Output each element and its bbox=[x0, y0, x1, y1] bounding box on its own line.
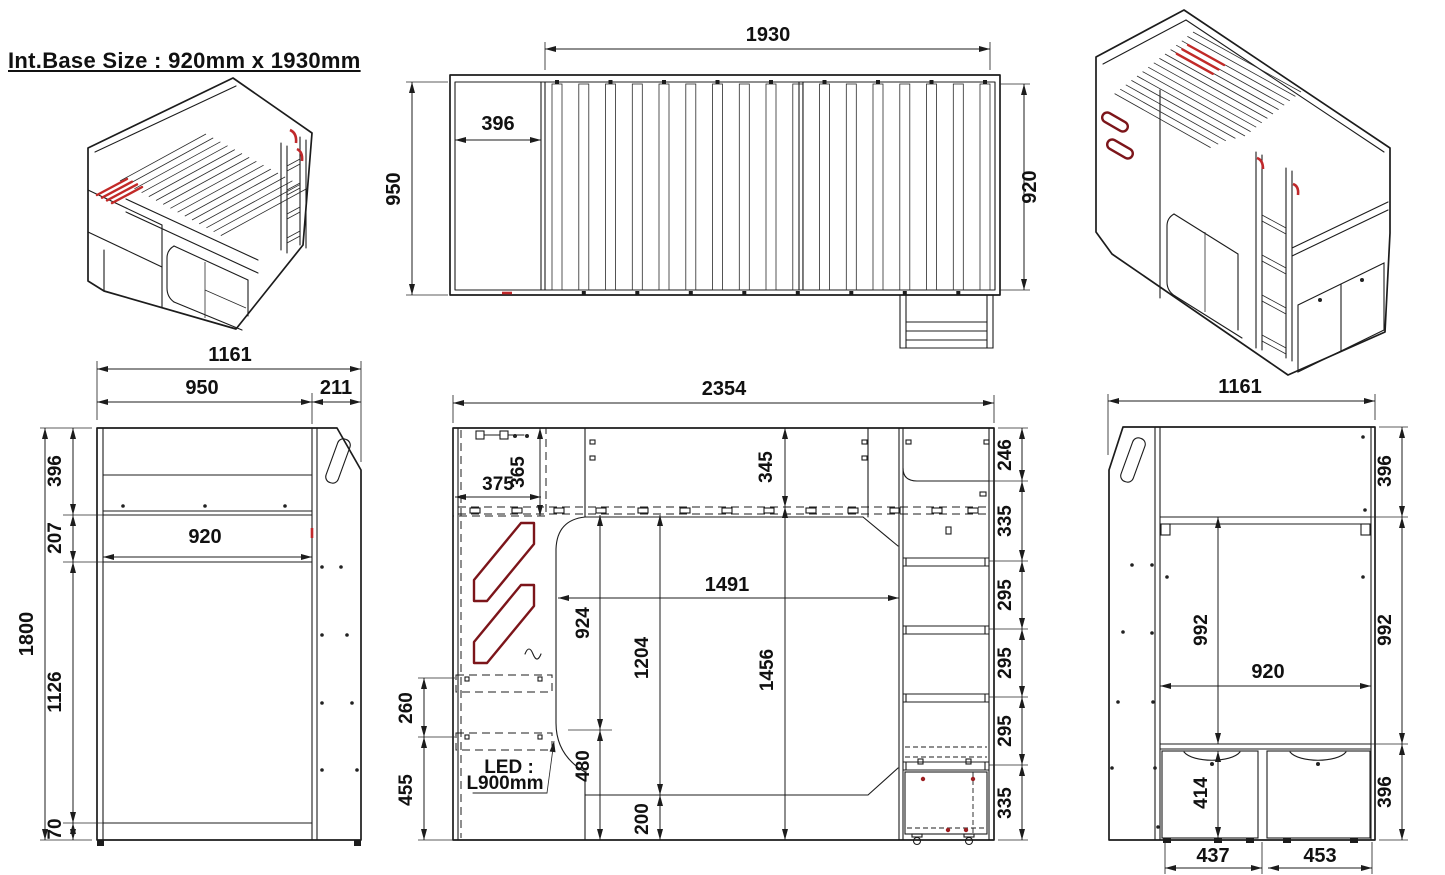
dim-label: 992 bbox=[1191, 614, 1212, 646]
dim-label: 437 bbox=[1196, 845, 1229, 867]
dim-label: 950 bbox=[383, 172, 405, 205]
dim-label: 1456 bbox=[757, 649, 778, 691]
red-accent-slats bbox=[97, 179, 142, 203]
dim-label: 396 bbox=[1375, 776, 1396, 808]
handle-cutout bbox=[1119, 436, 1147, 484]
dim-label: 396 bbox=[45, 455, 66, 487]
red-handle-slots bbox=[1100, 111, 1134, 161]
dim-label: 2354 bbox=[702, 378, 747, 400]
dim-label: 1930 bbox=[746, 24, 791, 46]
plan-ladder bbox=[900, 295, 993, 348]
dim-label: 70 bbox=[45, 818, 66, 839]
iso-view-front-left bbox=[88, 78, 312, 330]
dim-label: 920 bbox=[1251, 661, 1284, 683]
fitting-holes bbox=[121, 504, 359, 772]
side-elevation-left: 1161 950 211 396 207 1126 70 1800 920 bbox=[16, 344, 361, 846]
front-elevation: LED : L900mm bbox=[396, 378, 1028, 845]
dim-label: 335 bbox=[995, 505, 1016, 537]
dim-label: 335 bbox=[995, 787, 1016, 819]
drawing-canvas: 1930 396 950 920 bbox=[0, 0, 1445, 875]
ladder bbox=[1256, 152, 1292, 361]
dim-label: 207 bbox=[45, 522, 66, 554]
dim-label: 246 bbox=[995, 439, 1016, 471]
dim-label: 345 bbox=[756, 451, 777, 483]
dim-label: 1161 bbox=[208, 344, 251, 366]
dim-label: 453 bbox=[1303, 845, 1336, 867]
fitting-holes bbox=[1110, 435, 1367, 829]
hidden-cabinet bbox=[453, 428, 546, 516]
top-bunk-slats bbox=[120, 134, 307, 236]
slat-clips bbox=[555, 80, 987, 295]
ladder-rungs bbox=[903, 558, 989, 770]
dim-label: 295 bbox=[995, 647, 1016, 679]
red-accent-slats bbox=[1177, 45, 1224, 74]
dim-label: 1800 bbox=[16, 612, 38, 657]
dim-label: 920 bbox=[1019, 170, 1041, 203]
dim-label: 924 bbox=[573, 607, 594, 639]
handle-cutout bbox=[324, 437, 352, 485]
dim-label: 992 bbox=[1375, 614, 1396, 646]
dim-label: 295 bbox=[995, 579, 1016, 611]
dim-label: 200 bbox=[632, 803, 653, 835]
led-label: L900mm bbox=[466, 773, 543, 794]
dim-label: 211 bbox=[320, 377, 352, 399]
drawer-right bbox=[1267, 751, 1370, 838]
dim-label: 260 bbox=[396, 692, 417, 724]
hook-icon bbox=[525, 649, 541, 659]
dim-label: 455 bbox=[396, 774, 417, 806]
joint-marks bbox=[590, 440, 989, 534]
dim-label: 295 bbox=[995, 715, 1016, 747]
technical-drawing-sheet: Int.Base Size : 920mm x 1930mm bbox=[0, 0, 1445, 875]
top-bunk-slats bbox=[1115, 32, 1301, 148]
red-handle-slots bbox=[474, 523, 534, 663]
side-elevation-right: 1161 396 992 396 992 414 920 437 453 bbox=[1108, 376, 1408, 874]
dim-label: 480 bbox=[573, 750, 594, 782]
hinge-hardware bbox=[476, 431, 529, 439]
dim-label: 1491 bbox=[705, 574, 750, 596]
dim-label: 414 bbox=[1191, 777, 1212, 809]
dim-label: 396 bbox=[1375, 455, 1396, 487]
drawers bbox=[1298, 263, 1384, 372]
dim-label: 1161 bbox=[1218, 376, 1261, 398]
dim-label: 396 bbox=[481, 113, 514, 135]
dim-label: 365 bbox=[508, 456, 529, 488]
plan-view: 1930 396 950 920 bbox=[383, 24, 1041, 348]
iso-view-back-right bbox=[1096, 10, 1390, 375]
dim-label: 1126 bbox=[45, 671, 66, 712]
plan-slats bbox=[552, 84, 990, 290]
dim-label: 950 bbox=[185, 377, 218, 399]
shelf-clips bbox=[465, 677, 542, 739]
dim-label: 1204 bbox=[632, 636, 653, 679]
dim-label: 920 bbox=[188, 526, 221, 548]
